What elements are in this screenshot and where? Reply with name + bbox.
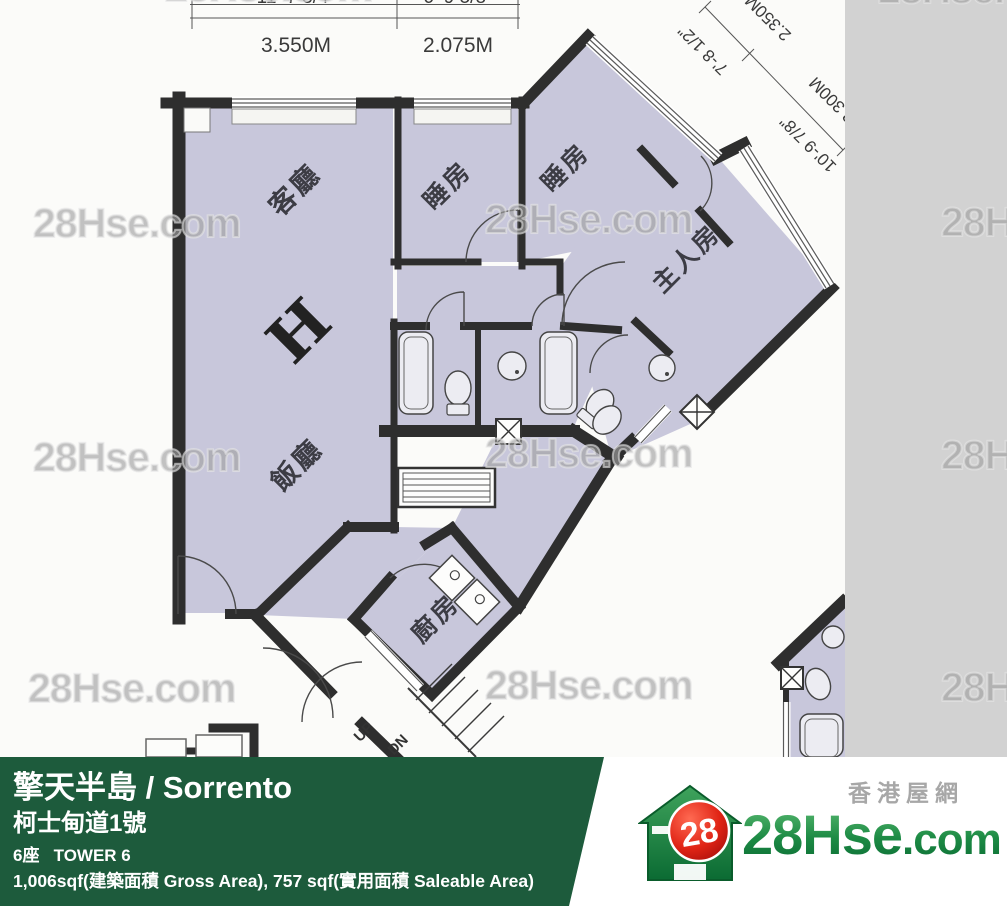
sink [822, 626, 844, 648]
floor-plan-svg: 11'-7 3/4" 6'-9 5/8" 3.550M 2.075M 7'-8 … [0, 0, 1007, 757]
area-info: 1,006sqf(建築面積 Gross Area), 757 sqf(實用面積 … [13, 868, 534, 893]
louvre-grille [398, 468, 495, 507]
estate-address: 柯士甸道1號 [13, 803, 146, 838]
dim-metric-2: 2.075M [423, 34, 493, 57]
logo-brand: 28Hse [742, 803, 902, 866]
dim-imperial-1: 11'-7 3/4" [257, 0, 336, 8]
logo-wordmark: 28Hse.com [742, 802, 1001, 867]
logo-brand-suffix: .com [902, 815, 1001, 864]
floor-plan-image: 11'-7 3/4" 6'-9 5/8" 3.550M 2.075M 7'-8 … [0, 0, 1007, 757]
dim-metric-1: 3.550M [261, 34, 331, 57]
bathtub [540, 332, 577, 414]
toilet [445, 371, 471, 405]
bathtub [800, 714, 843, 757]
logo-badge-number: 28 [677, 811, 721, 855]
sink [498, 352, 526, 380]
estate-title: 擎天半島 / Sorrento [13, 762, 292, 807]
tower-label: 6座 TOWER 6 [13, 841, 131, 866]
dim-imperial-2: 6'-9 5/8" [423, 0, 493, 8]
site-logo[interactable]: 28 香港屋網 28Hse.com [638, 772, 998, 897]
scan-gray-margin [845, 0, 1007, 757]
house-icon: 28 [638, 784, 742, 884]
floor-plan-page: 11'-7 3/4" 6'-9 5/8" 3.550M 2.075M 7'-8 … [0, 0, 1007, 906]
sink [649, 355, 675, 381]
